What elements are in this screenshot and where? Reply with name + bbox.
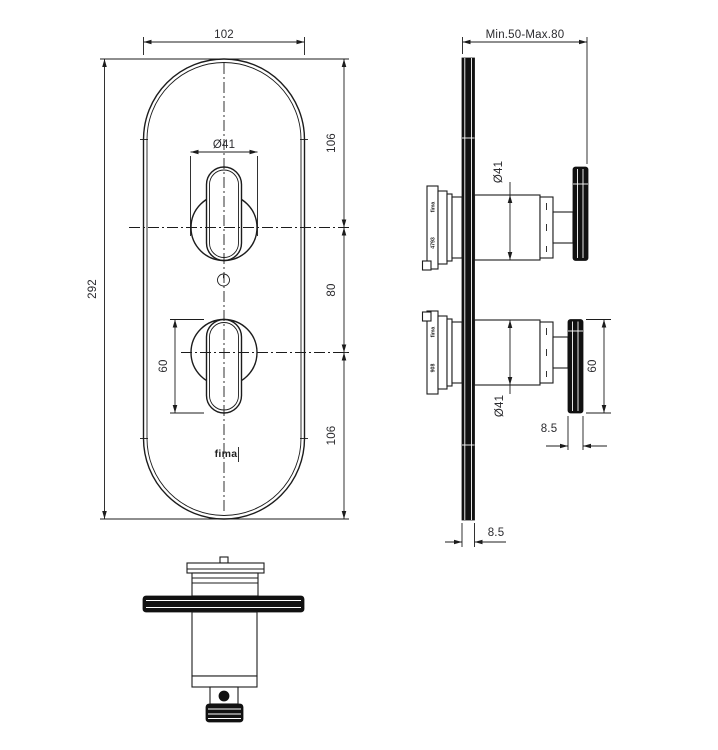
lower-handle-bar [568, 320, 583, 414]
threaded-connector [206, 704, 243, 722]
handle-cap [187, 563, 264, 573]
front-view: fima 102 292 [87, 29, 349, 519]
dim-knob-diameter-front-label: Ø41 [213, 139, 235, 151]
lower-knob-cylinder [475, 320, 541, 385]
dim-handle-length-side-label: 60 [587, 359, 599, 372]
valve-body-band [192, 676, 257, 687]
upper-cartridge-screw-tab [423, 261, 432, 270]
outlet-neck [210, 687, 238, 704]
upper-cartridge-code: 4793 [431, 237, 437, 249]
dim-plate-height-label: 292 [87, 279, 99, 299]
dim-plate-thickness: 8.5 [445, 523, 506, 547]
dim-plate-width-label: 102 [214, 29, 234, 41]
dim-center-gap-label: 80 [326, 283, 338, 296]
lower-cartridge-code: 908 [431, 364, 437, 373]
dim-handle-length-front-label: 60 [158, 359, 170, 372]
dim-lower-diameter-side-label: Ø41 [494, 395, 506, 417]
dim-handle-thickness-label: 8.5 [541, 423, 558, 435]
handle-top-nub [220, 557, 228, 563]
wall-plate-bar [462, 58, 475, 520]
brand-logo: fima [215, 447, 239, 462]
handle-body [192, 573, 258, 596]
upper-cartridge-ring1 [438, 191, 447, 264]
wall-plate-section [462, 58, 475, 520]
outlet-hole [219, 691, 229, 701]
dim-vertical-chain: 106 80 106 [326, 59, 349, 519]
lower-cartridge-brand: fima [431, 327, 437, 338]
dim-upper-diameter-side-label: Ø41 [493, 161, 505, 183]
plate-edge [143, 596, 304, 612]
upper-cartridge-body [452, 197, 462, 258]
brand-logo-text: fima [215, 448, 238, 460]
lower-cartridge-ring1 [438, 316, 447, 389]
dim-handle-length-side: 60 [586, 320, 611, 414]
drawing-canvas: fima 102 292 [0, 0, 718, 750]
dim-handle-thickness: 8.5 [541, 416, 607, 450]
threaded-connector-body [206, 704, 243, 722]
upper-knob-cylinder [475, 195, 541, 260]
dim-plate-width: 102 [144, 29, 305, 55]
upper-cartridge-brand: fima [431, 202, 437, 213]
dim-plate-thickness-label: 8.5 [488, 527, 505, 539]
bottom-view [143, 557, 304, 722]
dim-bottom-offset-label: 106 [326, 426, 338, 446]
upper-cartridge-ring2 [447, 194, 452, 261]
lower-cartridge-ring2 [447, 319, 452, 386]
dim-top-offset-label: 106 [326, 133, 338, 153]
lower-cartridge-body [452, 322, 462, 383]
side-view: fima 4793 fima 908 [423, 29, 612, 547]
valve-body [192, 612, 257, 676]
lower-handle-stem [553, 337, 568, 368]
upper-handle-stem [553, 212, 573, 243]
lower-cartridge-plate [427, 311, 438, 394]
upper-cartridge-plate [427, 186, 438, 269]
dim-depth-range: Min.50-Max.80 [463, 29, 588, 164]
technical-drawing: fima 102 292 [0, 0, 718, 750]
upper-handle-bar [573, 167, 588, 261]
dim-depth-range-label: Min.50-Max.80 [486, 29, 565, 41]
upper-valve-side: fima 4793 [423, 167, 589, 270]
lower-cartridge-screw-tab [423, 312, 432, 321]
plate-edge-bar [143, 596, 304, 612]
